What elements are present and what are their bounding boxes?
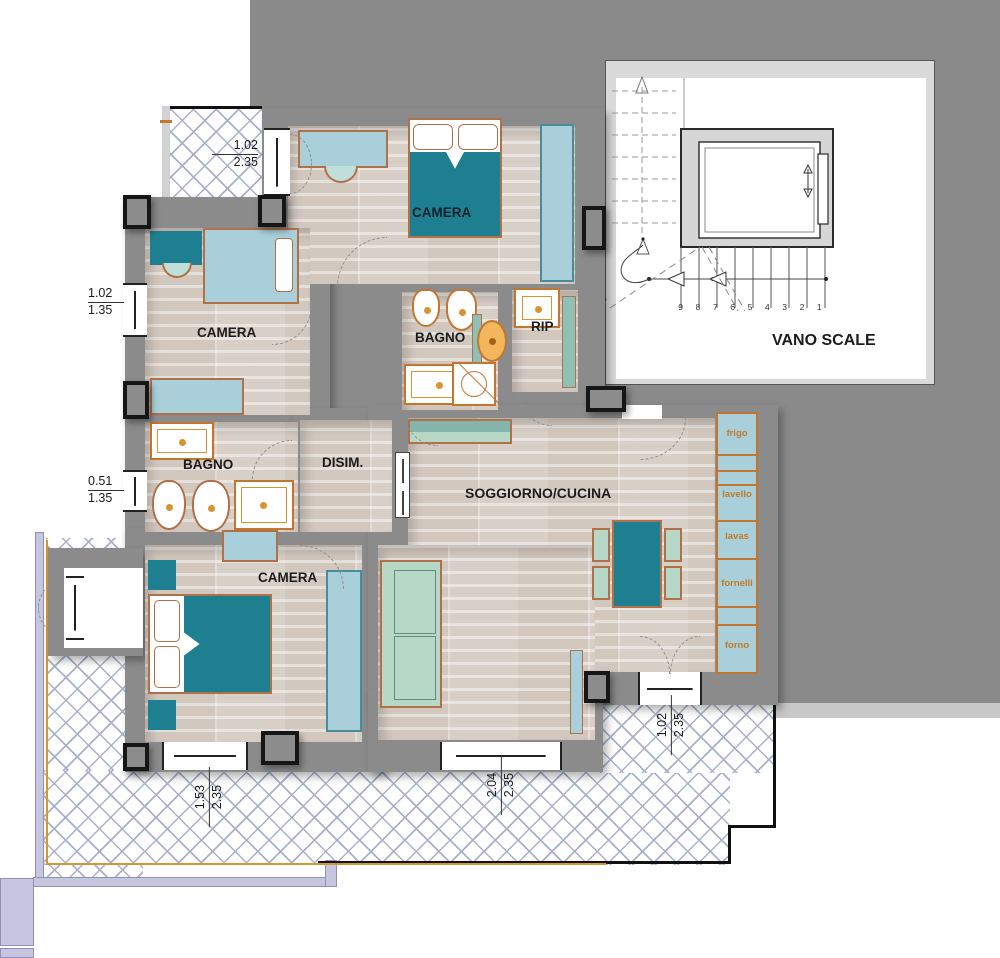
dim-width: 0.51 xyxy=(88,474,124,491)
dim-door-soggiorno-terrace: 1.02 2.35 xyxy=(655,695,687,755)
dining-chair xyxy=(664,566,682,600)
kitchen-unit-label-frigo: frigo xyxy=(716,428,758,439)
planter-box-1 xyxy=(0,878,34,946)
dim-height: 2.35 xyxy=(212,155,258,171)
terrace-edge-corner-h xyxy=(728,825,776,828)
tread-number: 7 xyxy=(707,302,724,314)
room-label-camera-left: CAMERA xyxy=(197,325,256,340)
pillow xyxy=(458,124,498,150)
pillar xyxy=(123,195,151,229)
sink-oval xyxy=(477,320,507,362)
tread-number: 3 xyxy=(776,302,793,314)
wardrobe xyxy=(540,124,574,282)
dim-height: 2.35 xyxy=(672,695,688,755)
dim-width: 2.04 xyxy=(485,755,502,815)
terrace-edge-right xyxy=(773,701,776,827)
dim-window-soggiorno-bottom: 2.04 2.35 xyxy=(485,755,517,815)
kitchen-unit-label-lavas: lavas xyxy=(716,531,758,542)
balcony-orange-mark xyxy=(160,120,172,123)
terrace-edge-corner-v xyxy=(728,825,731,864)
room-label-disim: DISIM. xyxy=(322,455,363,470)
dim-height: 2.35 xyxy=(210,767,226,827)
window-camera-bottom-south xyxy=(162,742,248,770)
dim-width: 1.02 xyxy=(212,138,258,155)
tread-number: 5 xyxy=(741,302,758,314)
pillar xyxy=(123,743,149,771)
bidet xyxy=(152,480,186,530)
floor-disim xyxy=(300,420,392,532)
pillar xyxy=(258,195,286,227)
room-label-bagno-left: BAGNO xyxy=(183,457,233,472)
shower xyxy=(452,362,496,406)
pillow xyxy=(154,646,180,688)
pillar xyxy=(586,386,626,412)
tv-cabinet xyxy=(570,650,583,734)
bed-blanket xyxy=(184,596,270,692)
tread-number: 1 xyxy=(811,302,828,314)
dim-window-camera-bottom: 1.53 2.35 xyxy=(193,767,225,827)
pillow xyxy=(154,600,180,642)
dim-window-camera-left: 1.02 1.35 xyxy=(88,286,124,318)
parapet-left xyxy=(35,532,44,886)
terrace-right xyxy=(600,701,776,773)
shelf xyxy=(222,530,278,562)
terrace-orange-line-h xyxy=(46,863,606,865)
room-label-vano-scale: VANO SCALE xyxy=(772,332,876,350)
room-label-soggiorno: SOGGIORNO/CUCINA xyxy=(465,485,611,501)
room-label-camera-bottom: CAMERA xyxy=(258,570,317,585)
double-bed xyxy=(148,594,272,694)
pillar xyxy=(582,206,606,250)
desk xyxy=(150,231,202,265)
dining-chair xyxy=(592,528,610,562)
window-camera-left xyxy=(123,283,147,337)
tread-number: 4 xyxy=(759,302,776,314)
pillow xyxy=(413,124,453,150)
tread-number: 6 xyxy=(724,302,741,314)
kitchen-unit-label-lavello: lavello xyxy=(716,489,758,500)
window-balcony-door-top xyxy=(264,128,290,196)
kitchen-counter xyxy=(716,412,758,674)
bed-blanket xyxy=(410,152,500,236)
pillar xyxy=(123,381,149,419)
wardrobe xyxy=(326,570,362,732)
planter-box-2 xyxy=(0,948,34,958)
dim-width: 1.02 xyxy=(88,286,124,303)
sofa xyxy=(380,560,442,708)
kitchen-unit-label-forno: forno xyxy=(716,640,758,651)
single-bed xyxy=(203,228,299,304)
pillar xyxy=(261,731,299,765)
sliding-door xyxy=(395,452,410,518)
dim-width: 1.53 xyxy=(193,767,210,827)
double-bed xyxy=(408,118,502,238)
pillow xyxy=(275,238,293,292)
dim-height: 1.35 xyxy=(88,303,124,319)
terrace-bottom xyxy=(44,770,730,865)
nightstand xyxy=(148,700,176,730)
dining-chair xyxy=(664,528,682,562)
parapet-bottom xyxy=(33,877,333,887)
dining-table xyxy=(612,520,662,608)
window-bagno-left xyxy=(123,470,147,512)
kitchen-unit-label-fornelli: fornelli xyxy=(716,578,758,589)
room-label-rip: RIP xyxy=(531,319,554,334)
shower-tray xyxy=(234,480,294,530)
tread-number: 2 xyxy=(793,302,810,314)
window-camera-bottom-alcove xyxy=(66,576,84,640)
room-label-bagno-top: BAGNO xyxy=(415,330,465,345)
tread-number: 8 xyxy=(689,302,706,314)
stair-tread-numbers: 9 8 7 6 5 4 3 2 1 xyxy=(672,302,828,314)
rip-shelf xyxy=(562,296,576,388)
dim-height: 1.35 xyxy=(88,491,124,507)
bidet xyxy=(412,289,440,327)
floor-plan: 9 8 7 6 5 4 3 2 1 10 VANO SCALE xyxy=(0,0,1000,958)
dim-width: 1.02 xyxy=(655,695,672,755)
dresser xyxy=(150,378,244,415)
dim-window-bagno-left: 0.51 1.35 xyxy=(88,474,124,506)
toilet xyxy=(192,480,230,532)
dining-chair xyxy=(592,566,610,600)
room-label-camera-top: CAMERA xyxy=(412,205,471,220)
nightstand xyxy=(148,560,176,590)
dim-balcony-door-top: 1.02 2.35 xyxy=(212,138,258,170)
stairwell-drawing xyxy=(606,61,936,386)
entrance-door-gap xyxy=(622,405,662,419)
stairwell-box xyxy=(605,60,935,385)
tread-number: 9 xyxy=(672,302,689,314)
dim-height: 2.35 xyxy=(502,755,518,815)
sink xyxy=(150,422,214,460)
pillar xyxy=(584,671,610,703)
